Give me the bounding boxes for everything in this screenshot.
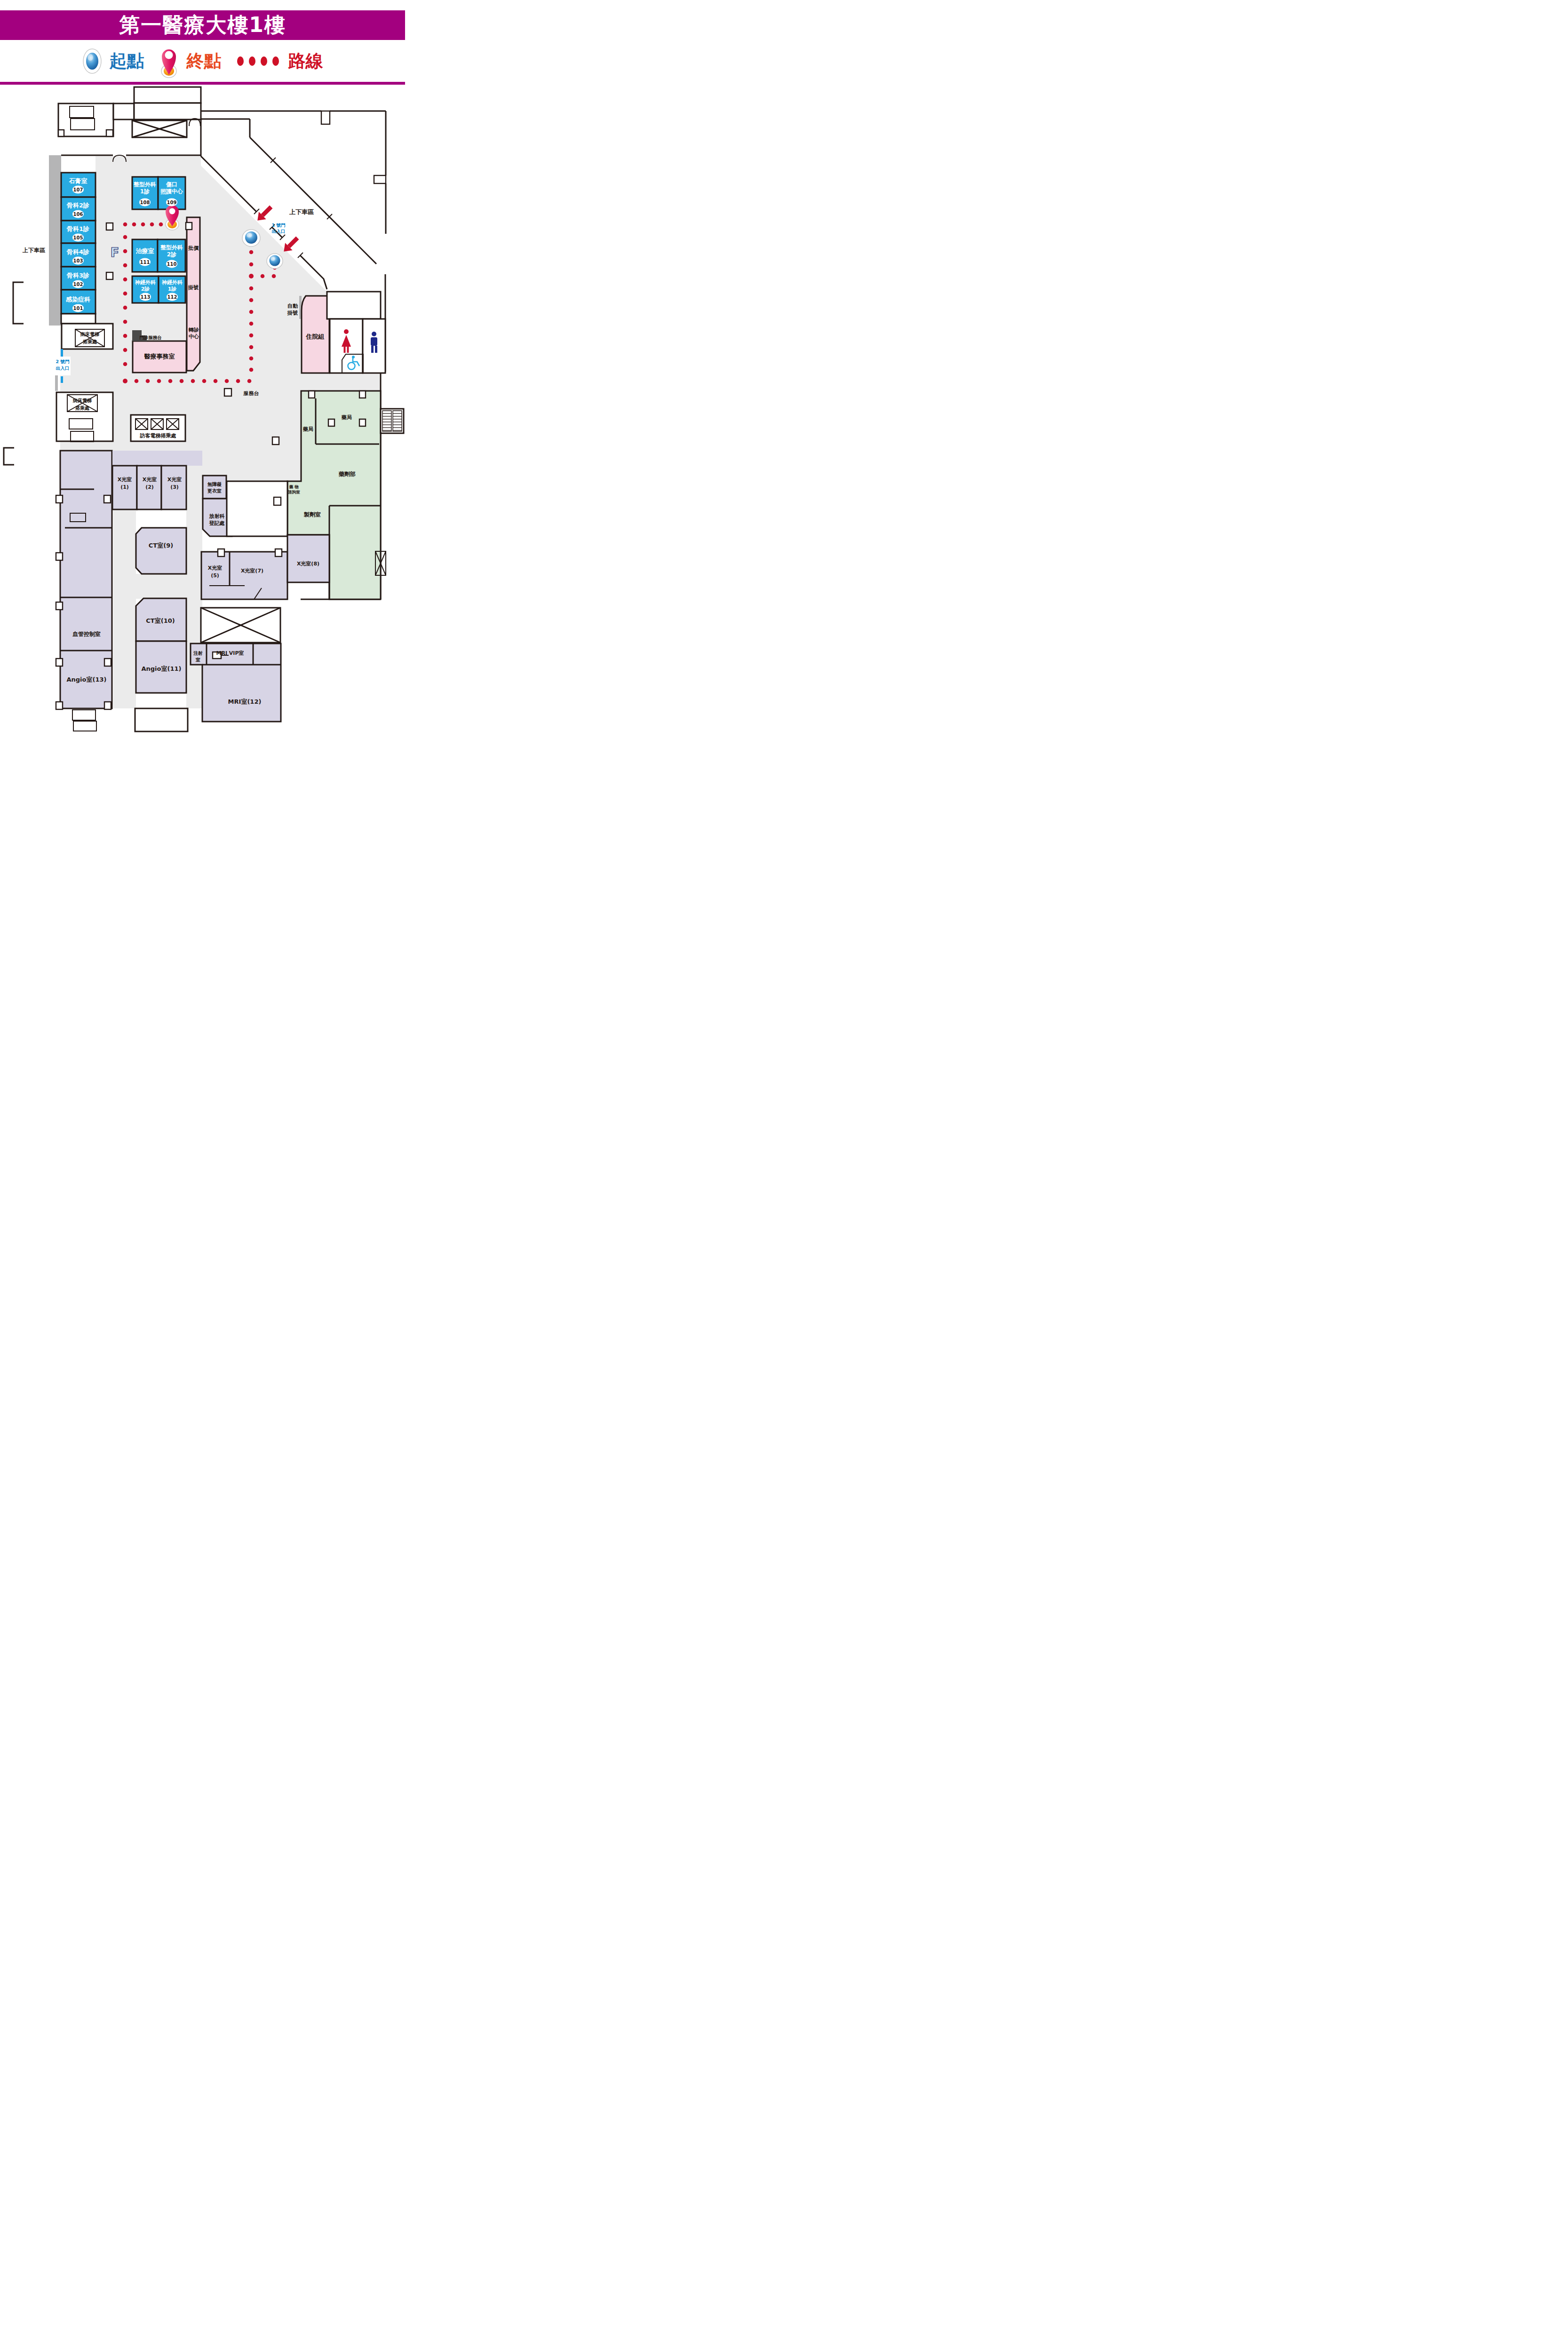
- svg-text:傷口: 傷口: [166, 181, 177, 188]
- outside-structures: [4, 282, 24, 465]
- svg-text:感染症科: 感染症科: [65, 296, 90, 303]
- svg-text:X光室: X光室: [118, 477, 132, 483]
- svg-text:治療室: 治療室: [136, 247, 154, 254]
- start-point-marker-2: [267, 254, 283, 269]
- mri12-label: MRI室(12): [228, 698, 262, 705]
- svg-text:(3): (3): [170, 484, 179, 490]
- injection-label: 注射: [193, 651, 203, 656]
- xray-room-8: [287, 535, 329, 582]
- mri-vip-label: MRI VIP室: [216, 650, 244, 656]
- svg-text:103: 103: [73, 258, 83, 263]
- svg-text:搭乘處: 搭乘處: [82, 339, 97, 344]
- room-111: [132, 239, 158, 272]
- svg-text:掛號: 掛號: [287, 310, 298, 316]
- dropoff-right-label: 上下車區: [289, 208, 314, 215]
- south-stairwell: [72, 708, 188, 731]
- bed-elevator2-label: 病床電梯: [72, 398, 92, 403]
- dropoff-left-label: 上下車區: [22, 247, 45, 254]
- info-counter-icon: [224, 389, 231, 396]
- svg-text:(2): (2): [145, 484, 154, 490]
- service-counter-label: 服務台: [243, 390, 259, 397]
- gate1-label: 1 號門: [272, 222, 286, 228]
- north-stairwell-block: [58, 103, 134, 136]
- registration-strip: [187, 217, 200, 371]
- stairs-icon: [134, 87, 201, 103]
- svg-text:出入口: 出入口: [56, 366, 70, 371]
- end-point-marker: [166, 205, 179, 230]
- svg-text:更衣室: 更衣室: [207, 488, 222, 493]
- svg-text:登記處: 登記處: [209, 520, 225, 526]
- pharmacy-dept-label: 藥劑部: [338, 471, 356, 477]
- svg-text:骨科2診: 骨科2診: [66, 202, 89, 209]
- xray8-label: X光室(8): [297, 561, 319, 567]
- svg-text:神經外科: 神經外科: [135, 279, 156, 286]
- angio13-label: Angio室(13): [67, 676, 107, 683]
- svg-text:112: 112: [167, 294, 177, 300]
- stairs-icon: [382, 411, 391, 431]
- svg-text:113: 113: [141, 294, 151, 300]
- svg-text:(5): (5): [211, 572, 219, 579]
- auto-registration-label: 自動: [287, 303, 298, 309]
- referral-center-label: 轉診: [188, 327, 199, 333]
- svg-text:石膏室: 石膏室: [69, 177, 88, 184]
- svg-text:搭乘處: 搭乘處: [75, 405, 89, 411]
- gate2-label: 2 號門: [56, 359, 70, 364]
- vascular-label: 血管控制室: [72, 631, 101, 637]
- svg-text:骨科1診: 骨科1診: [66, 225, 89, 232]
- angio11-label: Angio室(11): [142, 665, 182, 672]
- svg-text:1診: 1診: [168, 286, 177, 292]
- radiology-reg-label: 放射科: [209, 513, 225, 519]
- svg-text:整型外科: 整型外科: [160, 244, 183, 251]
- svg-text:108: 108: [140, 200, 150, 205]
- svg-text:諮詢室: 諮詢室: [287, 490, 300, 494]
- svg-text:110: 110: [167, 262, 177, 267]
- svg-text:102: 102: [73, 282, 83, 287]
- changing-room-label: 無障礙: [207, 482, 222, 487]
- stairs-icon: [72, 710, 96, 720]
- svg-text:神經外科: 神經外科: [161, 279, 183, 286]
- svg-text:2診: 2診: [167, 251, 177, 258]
- clinic-desk-label: 門診服務台: [139, 335, 162, 340]
- svg-text:整型外科: 整型外科: [133, 181, 156, 188]
- registration-label: 掛號: [188, 285, 199, 291]
- inpatient-group-label: 住院組: [306, 333, 325, 340]
- svg-text:X光室: X光室: [143, 477, 157, 483]
- svg-text:105: 105: [73, 235, 83, 240]
- ct-room-9: [136, 528, 186, 574]
- drug-consult-label: 藥 物: [289, 485, 299, 489]
- svg-text:101: 101: [73, 306, 83, 311]
- svg-text:2診: 2診: [141, 286, 151, 292]
- svg-text:X光室: X光室: [208, 565, 222, 571]
- stairs-icon: [73, 721, 96, 731]
- svg-text:出入口: 出入口: [272, 229, 286, 234]
- prep-room-label: 製劑室: [303, 511, 321, 518]
- pharmacy-label: 藥局: [341, 414, 352, 421]
- visitor-elevator-label: 訪客電梯搭乘處: [140, 433, 176, 439]
- changing-room: [203, 476, 226, 499]
- ct9-label: CT室(9): [149, 542, 173, 549]
- floor-map: F 上下車區 上下車區 1 號門 出入口 2 號門 出入口 石膏室 107 骨科…: [0, 0, 405, 732]
- xray7-label: X光室(7): [241, 568, 263, 574]
- svg-text:(1): (1): [120, 484, 129, 490]
- pharmacy-label-left: 藥局: [302, 426, 313, 432]
- stairs-icon: [393, 411, 402, 431]
- cashier-label: 批價: [188, 245, 199, 251]
- svg-text:X光室: X光室: [167, 477, 182, 483]
- north-grand-stairs: [132, 87, 201, 137]
- toilet-block: [327, 292, 385, 373]
- svg-text:109: 109: [167, 200, 177, 205]
- svg-text:室: 室: [195, 657, 200, 662]
- escalator-f-icon: F: [111, 245, 119, 260]
- svg-text:111: 111: [140, 260, 150, 265]
- ct10-label: CT室(10): [146, 617, 175, 624]
- hospital-floor-map-page: 第一醫療大樓1樓 起點: [0, 0, 405, 732]
- start-point-marker-1: [242, 230, 260, 246]
- svg-text:106: 106: [73, 212, 83, 217]
- svg-text:1診: 1診: [140, 188, 150, 195]
- svg-text:照護中心: 照護中心: [160, 188, 183, 195]
- svg-text:骨科3診: 骨科3診: [66, 272, 89, 279]
- svg-text:骨科4診: 骨科4診: [66, 248, 89, 255]
- male-toilet: [363, 319, 385, 373]
- medical-affairs-label: 醫療事務室: [144, 353, 175, 360]
- svg-text:中心: 中心: [189, 334, 199, 340]
- bed-elevator1-label: 病床電梯: [80, 332, 99, 337]
- svg-text:107: 107: [73, 187, 83, 192]
